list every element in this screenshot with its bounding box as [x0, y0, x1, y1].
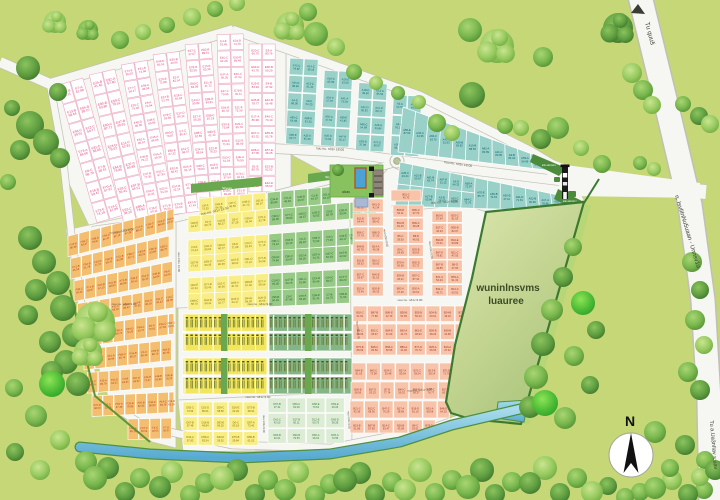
svg-text:60.97: 60.97	[256, 201, 263, 206]
svg-text:74.78: 74.78	[233, 42, 241, 46]
svg-text:60.75: 60.75	[313, 421, 320, 425]
svg-text:41.72: 41.72	[204, 83, 212, 88]
svg-text:58.65: 58.65	[217, 409, 224, 413]
svg-text:90.99: 90.99	[529, 200, 536, 204]
svg-text:75.84: 75.84	[222, 125, 230, 129]
svg-text:64.32: 64.32	[453, 183, 460, 187]
svg-text:nuu nu. n31v 9.00: nuu nu. n31v 9.00	[246, 395, 271, 399]
svg-text:51.86: 51.86	[354, 427, 361, 431]
svg-text:53.61: 53.61	[412, 427, 419, 431]
svg-text:62.52: 62.52	[265, 168, 273, 172]
svg-text:47.49: 47.49	[116, 405, 123, 409]
svg-text:60.78: 60.78	[357, 248, 364, 252]
svg-text:83.95: 83.95	[495, 153, 502, 157]
svg-text:42.36: 42.36	[354, 410, 361, 414]
svg-text:60.29: 60.29	[265, 68, 273, 72]
svg-text:58.37: 58.37	[218, 221, 225, 226]
svg-text:89.70: 89.70	[152, 351, 159, 356]
svg-text:53.48: 53.48	[385, 372, 392, 376]
svg-text:54.58: 54.58	[259, 259, 266, 263]
svg-text:39.50: 39.50	[397, 237, 404, 241]
svg-text:66.10: 66.10	[141, 353, 148, 358]
svg-text:56.65: 56.65	[430, 348, 437, 352]
svg-text:60.17: 60.17	[375, 109, 382, 113]
svg-text:68.08: 68.08	[427, 410, 434, 414]
svg-text:51.65: 51.65	[220, 42, 228, 46]
svg-text:49.84: 49.84	[202, 424, 209, 428]
svg-text:72.92: 72.92	[313, 239, 320, 244]
svg-text:90.00: 90.00	[373, 262, 380, 266]
svg-text:41.73: 41.73	[400, 332, 407, 336]
svg-text:53.45: 53.45	[205, 285, 212, 289]
svg-text:54.44: 54.44	[357, 220, 364, 224]
svg-text:39.54: 39.54	[414, 372, 421, 376]
svg-text:37.36: 37.36	[397, 290, 404, 294]
svg-text:80.01: 80.01	[202, 409, 209, 413]
svg-text:41.63: 41.63	[386, 332, 393, 336]
svg-text:49.04: 49.04	[245, 219, 252, 224]
svg-text:61.81: 61.81	[357, 314, 364, 318]
svg-text:60.67: 60.67	[374, 143, 381, 147]
svg-text:77.26: 77.26	[326, 238, 333, 243]
svg-text:53.72: 53.72	[413, 264, 420, 268]
svg-text:38.28: 38.28	[413, 224, 420, 228]
svg-text:40.61: 40.61	[274, 436, 281, 440]
svg-text:61.32: 61.32	[306, 85, 313, 89]
svg-text:40.77: 40.77	[218, 246, 225, 251]
svg-text:37.90: 37.90	[452, 266, 459, 270]
svg-text:73.40: 73.40	[248, 424, 255, 428]
svg-text:86.99: 86.99	[218, 262, 225, 266]
svg-text:60.61: 60.61	[430, 314, 437, 318]
svg-text:81.16: 81.16	[412, 410, 419, 414]
svg-text:39.37: 39.37	[163, 428, 170, 432]
svg-text:nuu nu. n31v 9.00: nuu nu. n31v 9.00	[248, 302, 273, 306]
svg-text:37.05: 37.05	[252, 151, 260, 155]
svg-text:53.23: 53.23	[369, 391, 376, 395]
svg-text:75.49: 75.49	[357, 290, 364, 294]
svg-text:61.33: 61.33	[305, 119, 312, 123]
svg-text:80.75: 80.75	[252, 168, 260, 172]
svg-text:72.03: 72.03	[324, 137, 331, 141]
svg-text:63.20: 63.20	[299, 256, 306, 260]
svg-text:61.73: 61.73	[243, 203, 250, 208]
svg-text:62.06: 62.06	[293, 405, 300, 409]
svg-text:66.48: 66.48	[265, 101, 273, 105]
svg-text:48.35: 48.35	[221, 75, 229, 79]
svg-text:58.95: 58.95	[355, 391, 362, 395]
svg-text:53.84: 53.84	[375, 126, 382, 130]
svg-text:89.79: 89.79	[100, 381, 107, 386]
svg-text:64.91: 64.91	[206, 100, 214, 105]
svg-text:72.55: 72.55	[332, 436, 339, 440]
svg-text:79.29: 79.29	[383, 410, 390, 414]
svg-text:38.89: 38.89	[397, 410, 404, 414]
svg-text:86.25: 86.25	[217, 424, 224, 428]
svg-text:83.78: 83.78	[259, 218, 266, 223]
svg-text:47.91: 47.91	[325, 118, 332, 122]
svg-text:41.76: 41.76	[252, 68, 260, 72]
svg-text:42.68: 42.68	[444, 332, 451, 336]
svg-text:57.37: 57.37	[311, 196, 318, 201]
svg-text:80.89: 80.89	[482, 150, 489, 154]
svg-text:88.09: 88.09	[357, 348, 364, 352]
svg-text:a3u a1s1scu:: a3u a1s1scu:	[542, 164, 557, 167]
svg-text:47.05: 47.05	[452, 254, 459, 258]
svg-text:42.85: 42.85	[340, 118, 347, 122]
svg-text:72.02: 72.02	[313, 213, 320, 218]
svg-text:39.04: 39.04	[313, 436, 320, 440]
svg-text:46.25: 46.25	[265, 151, 273, 155]
svg-text:47.42: 47.42	[444, 348, 451, 352]
svg-text:89.54: 89.54	[205, 247, 212, 252]
svg-text:49.56: 49.56	[229, 204, 236, 209]
svg-text:luauree: luauree	[488, 296, 524, 307]
svg-text:88.55: 88.55	[469, 147, 476, 151]
svg-text:64.15: 64.15	[323, 195, 330, 200]
svg-text:78.80: 78.80	[286, 216, 293, 221]
svg-text:83.54: 83.54	[202, 438, 209, 442]
svg-text:77.43: 77.43	[191, 263, 198, 267]
svg-text:43.09: 43.09	[397, 427, 404, 431]
svg-text:65.47: 65.47	[371, 332, 378, 336]
svg-text:62.55: 62.55	[190, 68, 198, 73]
svg-text:79.23: 79.23	[209, 149, 217, 154]
svg-text:80.76: 80.76	[265, 52, 273, 56]
svg-text:50.17: 50.17	[339, 137, 346, 141]
svg-text:47.92: 47.92	[265, 85, 273, 89]
svg-text:59.84: 59.84	[232, 438, 239, 442]
svg-text:74.80: 74.80	[272, 258, 279, 262]
svg-text:nuu n31v 12.00: nuu n31v 12.00	[177, 252, 181, 272]
svg-text:57.97: 57.97	[326, 99, 333, 103]
svg-text:47.10: 47.10	[245, 260, 252, 264]
svg-text:54.11: 54.11	[397, 211, 404, 215]
svg-text:46.74: 46.74	[119, 355, 126, 360]
svg-text:71.61: 71.61	[516, 198, 523, 202]
svg-text:40.17: 40.17	[340, 237, 347, 242]
svg-text:63.60: 63.60	[155, 377, 162, 382]
svg-text:wuninlnsvms: wuninlnsvms	[475, 283, 540, 294]
svg-text:41.92: 41.92	[400, 348, 407, 352]
svg-text:47.02: 47.02	[234, 75, 242, 79]
svg-text:37.26: 37.26	[232, 220, 239, 225]
svg-text:76.59: 76.59	[236, 158, 244, 162]
svg-text:74.12: 74.12	[272, 242, 279, 247]
svg-text:82.32: 82.32	[252, 134, 260, 138]
svg-text:37.54: 37.54	[223, 175, 231, 179]
svg-text:nuu nu. n31v 9.00: nuu nu. n31v 9.00	[112, 302, 137, 306]
svg-text:63.91: 63.91	[122, 380, 129, 385]
svg-text:62.49: 62.49	[232, 409, 239, 413]
svg-text:63.47: 63.47	[383, 427, 390, 431]
svg-text:81.91: 81.91	[232, 284, 239, 288]
svg-text:65.30: 65.30	[304, 137, 311, 141]
svg-text:74.51: 74.51	[490, 195, 497, 199]
svg-text:42.00: 42.00	[274, 421, 281, 425]
svg-text:40.71: 40.71	[436, 290, 443, 294]
svg-text:46.06: 46.06	[332, 405, 339, 409]
svg-text:nuu n31v 9.00: nuu n31v 9.00	[262, 415, 266, 433]
svg-text:48.30: 48.30	[362, 91, 369, 95]
svg-text:43.47: 43.47	[286, 257, 293, 261]
svg-text:79.81: 79.81	[436, 254, 443, 258]
svg-text:62.77: 62.77	[289, 136, 296, 140]
svg-text:63.76: 63.76	[160, 402, 167, 406]
svg-text:61.06: 61.06	[342, 80, 349, 84]
svg-text:56.54: 56.54	[196, 150, 204, 155]
svg-text:91.32: 91.32	[452, 278, 459, 282]
svg-text:81.63: 81.63	[356, 372, 363, 376]
svg-text:89.63: 89.63	[413, 251, 420, 255]
svg-text:46.92: 46.92	[413, 237, 420, 241]
svg-text:83.35: 83.35	[205, 262, 212, 266]
svg-text:51.66: 51.66	[299, 280, 306, 284]
svg-text:37.79: 37.79	[357, 234, 364, 238]
svg-text:N: N	[625, 413, 635, 429]
svg-text:44.36: 44.36	[417, 134, 424, 138]
svg-text:38.36: 38.36	[292, 84, 299, 88]
svg-text:65.74: 65.74	[427, 178, 434, 182]
svg-text:72.99: 72.99	[235, 108, 243, 112]
svg-text:88.41: 88.41	[373, 220, 380, 224]
svg-text:45.70: 45.70	[403, 196, 410, 200]
svg-text:42.79: 42.79	[386, 314, 393, 318]
svg-text:84.94: 84.94	[252, 85, 260, 89]
svg-text:60.11: 60.11	[293, 421, 300, 425]
svg-text:57.85: 57.85	[286, 297, 293, 301]
svg-text:60.04: 60.04	[340, 211, 347, 216]
svg-text:87.04: 87.04	[404, 131, 411, 135]
svg-text:51.15: 51.15	[440, 180, 447, 184]
svg-text:79.92: 79.92	[293, 67, 300, 71]
svg-text:50.23: 50.23	[415, 314, 422, 318]
svg-text:41.70: 41.70	[326, 295, 333, 299]
svg-text:57.64: 57.64	[436, 217, 443, 221]
svg-text:70.72: 70.72	[415, 348, 422, 352]
svg-text:61.02: 61.02	[248, 438, 255, 442]
svg-text:37.70: 37.70	[413, 211, 420, 215]
svg-text:77.74: 77.74	[384, 391, 391, 395]
svg-text:56.26: 56.26	[193, 117, 201, 122]
svg-text:82.07: 82.07	[452, 229, 459, 233]
svg-text:77.89: 77.89	[371, 314, 378, 318]
svg-text:36.98: 36.98	[218, 284, 225, 288]
svg-text:54.99: 54.99	[397, 251, 404, 255]
svg-text:56.45: 56.45	[313, 279, 320, 283]
svg-text:51.41: 51.41	[313, 296, 320, 300]
svg-text:54.99: 54.99	[522, 159, 529, 163]
svg-text:85.78: 85.78	[236, 125, 244, 129]
svg-text:80.78: 80.78	[222, 109, 230, 113]
svg-text:63.16: 63.16	[168, 402, 175, 406]
svg-text:70.01: 70.01	[436, 241, 443, 245]
svg-text:89.51: 89.51	[202, 51, 210, 56]
svg-text:82.62: 82.62	[361, 108, 368, 112]
svg-text:49.19: 49.19	[444, 314, 451, 318]
svg-text:52.69: 52.69	[195, 134, 203, 139]
svg-text:65.35: 65.35	[272, 281, 279, 285]
svg-text:81.63: 81.63	[452, 217, 459, 221]
svg-text:48.49: 48.49	[211, 166, 219, 171]
svg-text:58.20: 58.20	[94, 406, 101, 410]
svg-text:36.21: 36.21	[397, 277, 404, 281]
svg-text:68.36: 68.36	[368, 410, 375, 414]
svg-text:84.50: 84.50	[371, 348, 378, 352]
svg-text:61.94: 61.94	[223, 159, 231, 163]
svg-text:53.21: 53.21	[111, 380, 118, 385]
svg-text:64.68: 64.68	[290, 118, 297, 122]
svg-text:82.78: 82.78	[326, 212, 333, 217]
svg-text:84.32: 84.32	[508, 156, 515, 160]
svg-text:74.76: 74.76	[313, 255, 320, 259]
svg-text:54.23: 54.23	[306, 102, 313, 106]
svg-text:57.20: 57.20	[373, 234, 380, 238]
svg-text:54.24: 54.24	[436, 278, 443, 282]
svg-text:49.69: 49.69	[284, 199, 291, 204]
svg-text:55.97: 55.97	[357, 276, 364, 280]
svg-text:65.03: 65.03	[265, 184, 273, 188]
svg-text:89.20: 89.20	[340, 278, 347, 282]
svg-text:71.56: 71.56	[340, 295, 347, 299]
svg-text:70.95: 70.95	[221, 92, 229, 96]
svg-text:70.64: 70.64	[313, 405, 320, 409]
svg-text:85.99: 85.99	[327, 80, 334, 84]
svg-text:89.48: 89.48	[234, 58, 242, 62]
svg-text:37.09: 37.09	[359, 142, 366, 146]
svg-text:58.70: 58.70	[191, 302, 198, 306]
svg-text:73.37: 73.37	[144, 378, 151, 383]
svg-text:78.77: 78.77	[252, 101, 260, 105]
svg-text:71.61: 71.61	[223, 142, 231, 146]
svg-text:62.02: 62.02	[340, 254, 347, 258]
svg-text:50.56: 50.56	[386, 348, 393, 352]
svg-text:66.33: 66.33	[373, 290, 380, 294]
svg-text:54.17: 54.17	[232, 300, 239, 304]
svg-text:50.68: 50.68	[397, 264, 404, 268]
svg-text:88.22: 88.22	[299, 240, 306, 245]
svg-text:71.68: 71.68	[232, 245, 239, 250]
svg-text:55.97: 55.97	[298, 198, 305, 203]
svg-text:48.94: 48.94	[415, 332, 422, 336]
svg-text:87.83: 87.83	[368, 427, 375, 431]
svg-text:71.15: 71.15	[259, 243, 266, 248]
svg-text:57.07: 57.07	[188, 52, 196, 57]
svg-text:53.89: 53.89	[452, 241, 459, 245]
svg-text:73.99: 73.99	[370, 372, 377, 376]
svg-text:44.37: 44.37	[299, 214, 306, 219]
svg-text:81.02: 81.02	[373, 276, 380, 280]
svg-text:74.44: 74.44	[191, 248, 198, 253]
svg-text:59.32: 59.32	[398, 391, 405, 395]
svg-text:72.76: 72.76	[464, 200, 471, 204]
svg-text:68.56: 68.56	[259, 282, 266, 286]
svg-text:66.70: 66.70	[252, 52, 260, 56]
svg-text:62.61: 62.61	[413, 290, 420, 294]
svg-text:85.77: 85.77	[478, 194, 485, 198]
svg-text:38.62: 38.62	[232, 261, 239, 265]
svg-text:63.09: 63.09	[191, 85, 199, 90]
svg-text:49.85: 49.85	[436, 266, 443, 270]
svg-text:54.99: 54.99	[360, 125, 367, 129]
svg-text:62.05: 62.05	[138, 404, 145, 408]
svg-text:88.99: 88.99	[236, 142, 244, 146]
svg-text:83.18: 83.18	[232, 424, 239, 428]
svg-text:42.77: 42.77	[218, 300, 225, 304]
svg-text:59.52: 59.52	[133, 379, 140, 384]
svg-text:76.23: 76.23	[166, 376, 173, 381]
svg-text:43.24: 43.24	[402, 174, 409, 178]
svg-text:56.20: 56.20	[299, 297, 306, 301]
svg-text:63.70: 63.70	[430, 137, 437, 141]
svg-text:39.04: 39.04	[141, 429, 148, 433]
svg-text:82.81: 82.81	[245, 244, 252, 249]
svg-text:39.94: 39.94	[108, 356, 115, 361]
svg-text:52.29: 52.29	[326, 255, 333, 259]
svg-text:82.28: 82.28	[224, 192, 232, 196]
svg-text:38.34: 38.34	[248, 409, 255, 413]
svg-text:38.26: 38.26	[430, 332, 437, 336]
svg-text:87.19: 87.19	[207, 116, 215, 121]
svg-text:74.54: 74.54	[187, 409, 194, 413]
svg-text:79.55: 79.55	[293, 436, 300, 440]
svg-text:85.49: 85.49	[163, 350, 170, 355]
svg-text:alxas: alxas	[342, 190, 350, 194]
svg-text:81.16: 81.16	[237, 175, 245, 179]
svg-text:85.80: 85.80	[149, 403, 156, 407]
svg-text:58.14: 58.14	[429, 372, 436, 376]
svg-text:50.83: 50.83	[192, 101, 200, 106]
svg-text:85.56: 85.56	[376, 92, 383, 96]
svg-text:46.24: 46.24	[436, 229, 443, 233]
svg-text:73.58: 73.58	[341, 99, 348, 103]
svg-text:59.53: 59.53	[357, 262, 364, 266]
svg-text:59.31: 59.31	[205, 301, 212, 305]
svg-text:72.87: 72.87	[465, 185, 472, 189]
svg-text:57.83: 57.83	[187, 438, 194, 442]
svg-text:42.34: 42.34	[373, 206, 380, 210]
svg-text:51.65: 51.65	[400, 314, 407, 318]
svg-text:43.95: 43.95	[152, 429, 159, 433]
svg-text:58.07: 58.07	[326, 278, 333, 282]
svg-text:38.28: 38.28	[332, 421, 339, 425]
svg-text:86.00: 86.00	[272, 217, 279, 222]
svg-text:86.06: 86.06	[291, 101, 298, 105]
svg-text:81.28: 81.28	[220, 59, 228, 63]
svg-text:65.78: 65.78	[265, 134, 273, 138]
svg-text:64.27: 64.27	[191, 224, 198, 229]
svg-text:59.52: 59.52	[217, 438, 224, 442]
svg-text:80.54: 80.54	[399, 372, 406, 376]
svg-text:87.32: 87.32	[413, 277, 420, 281]
svg-text:51.63: 51.63	[443, 141, 450, 145]
svg-text:79.63: 79.63	[197, 167, 205, 172]
svg-text:40.38: 40.38	[373, 248, 380, 252]
svg-text:64.25: 64.25	[440, 410, 447, 414]
svg-text:36.19: 36.19	[286, 241, 293, 246]
svg-text:57.48: 57.48	[187, 424, 194, 428]
svg-text:59.82: 59.82	[456, 144, 463, 148]
svg-text:50.67: 50.67	[414, 176, 421, 180]
svg-text:80.27: 80.27	[130, 354, 137, 359]
svg-text:50.79: 50.79	[205, 222, 212, 227]
svg-text:63.91: 63.91	[452, 290, 459, 294]
svg-text:57.66: 57.66	[245, 283, 252, 287]
svg-text:78.89: 78.89	[127, 404, 134, 408]
svg-text:36.11: 36.11	[235, 92, 243, 96]
svg-text:89.86: 89.86	[271, 200, 278, 205]
svg-text:47.12: 47.12	[503, 197, 510, 201]
